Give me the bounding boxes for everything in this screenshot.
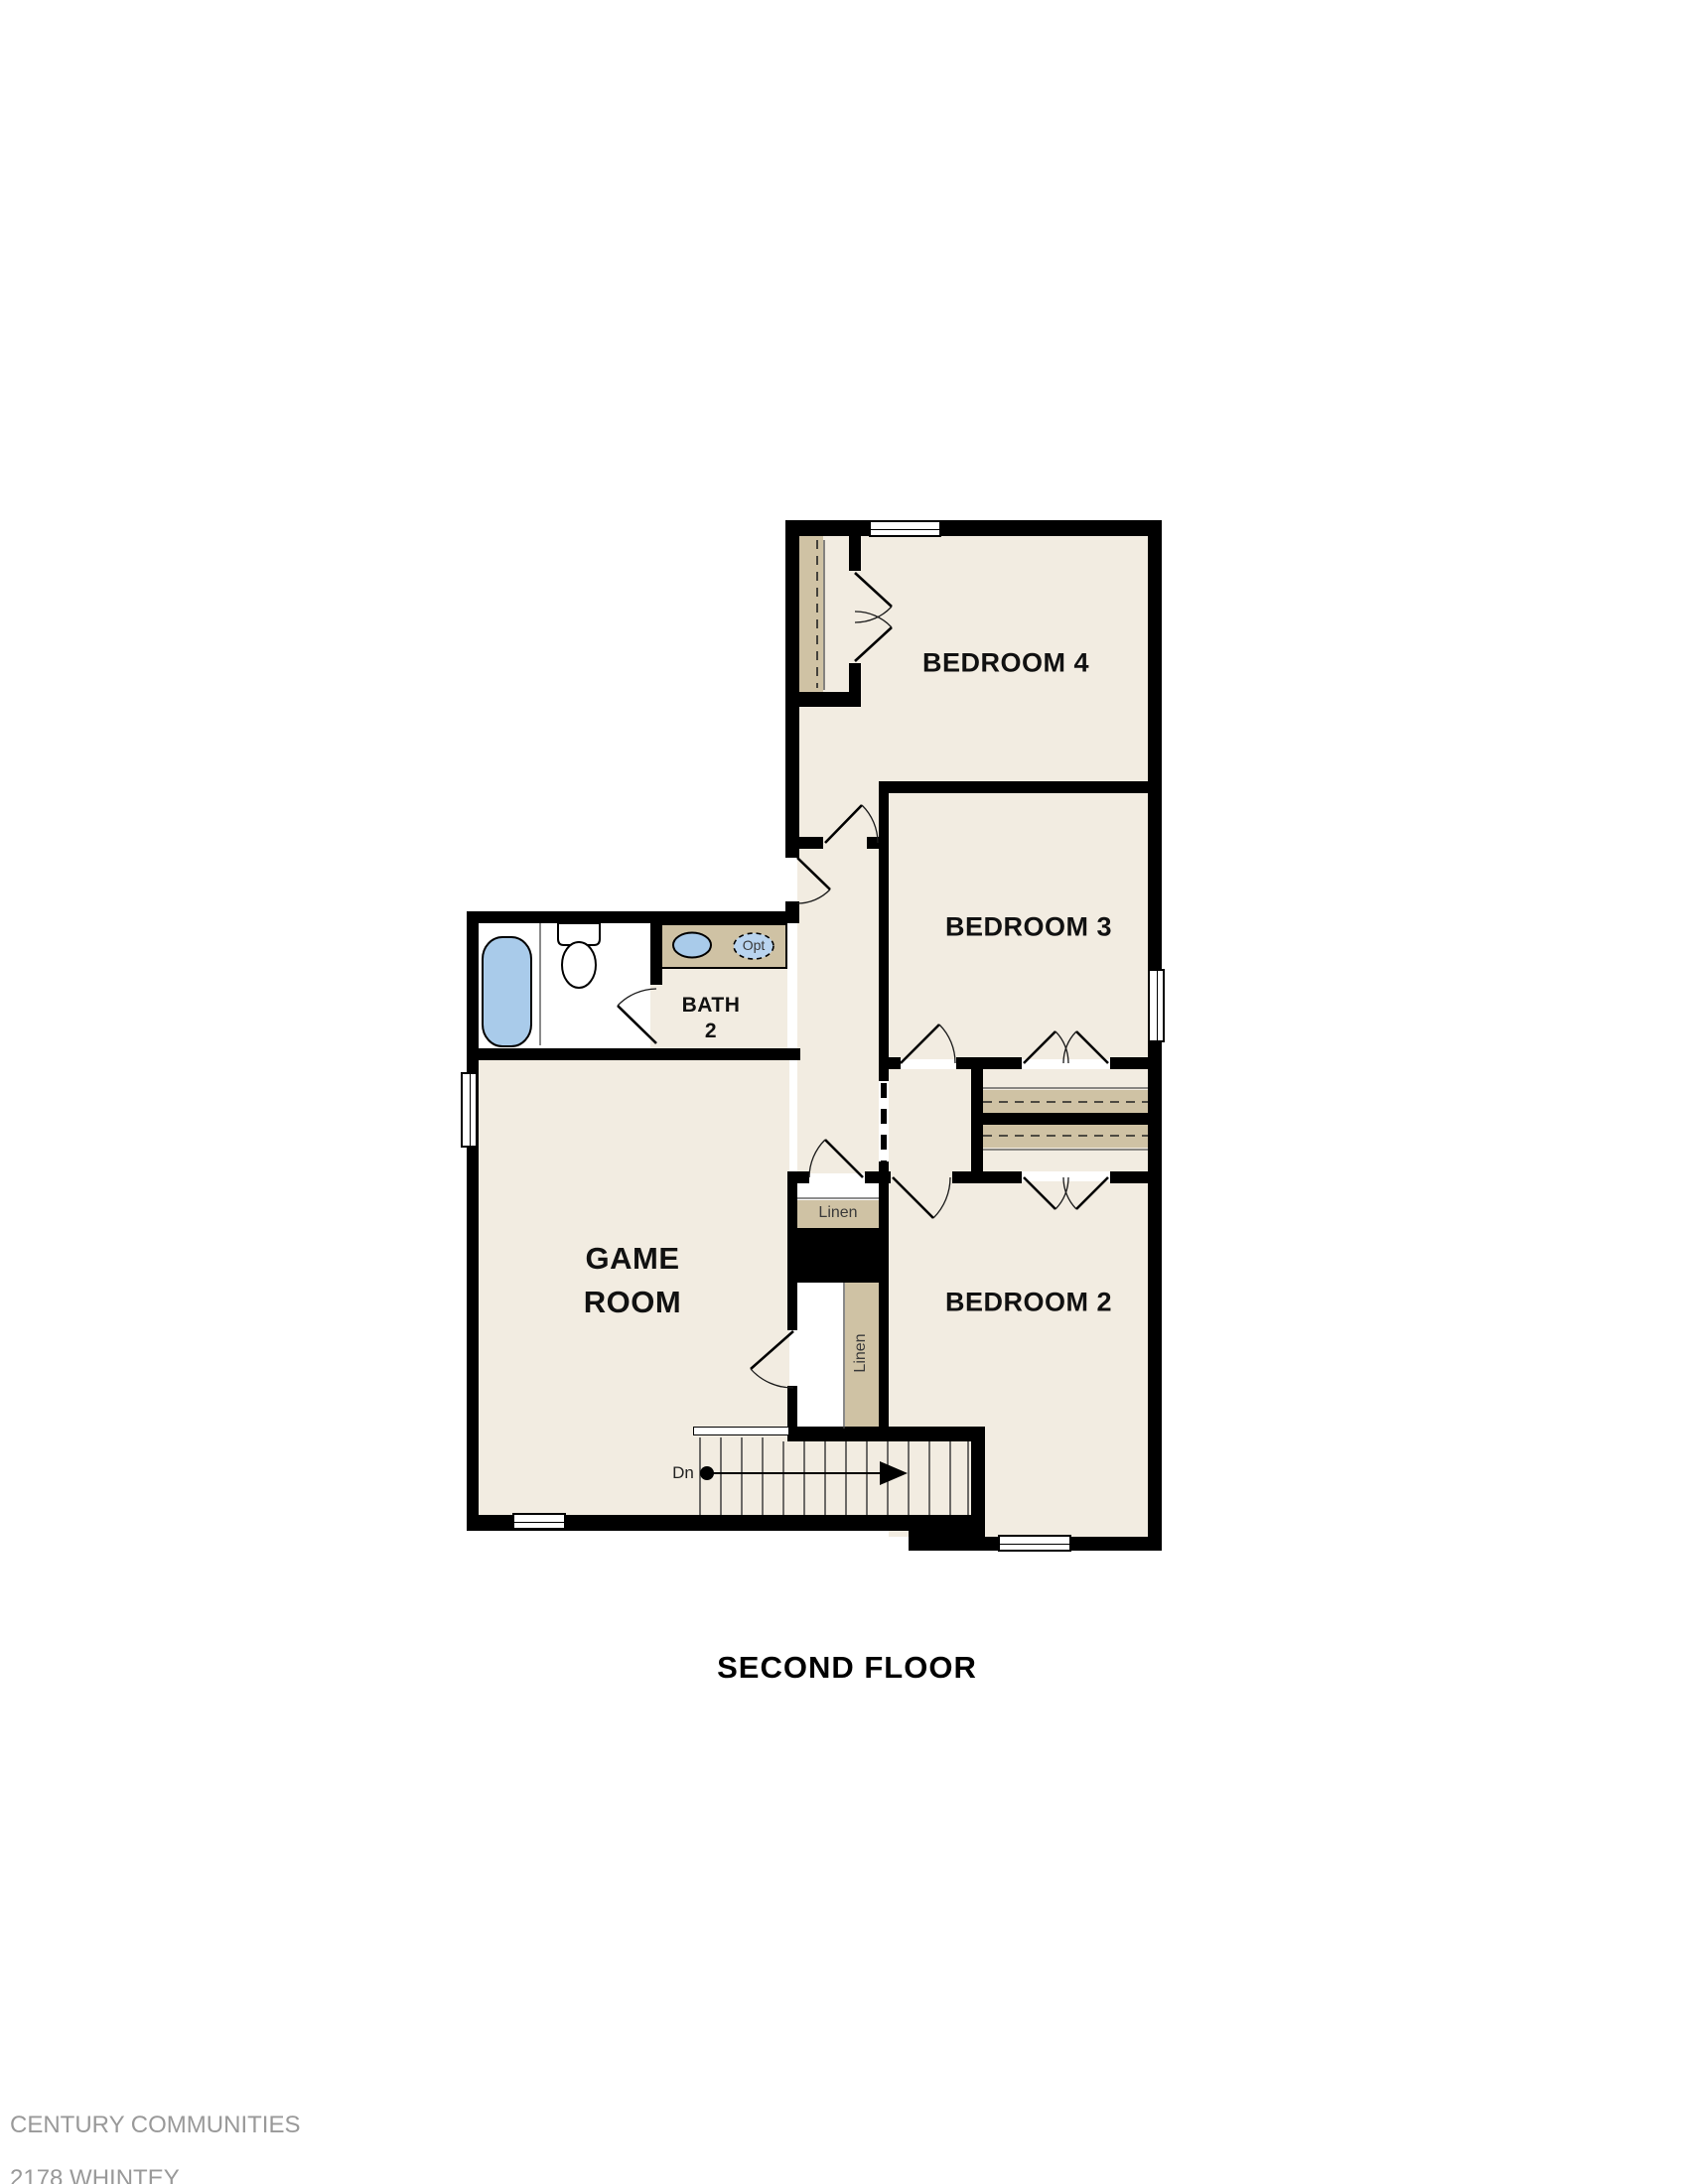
french-doors-bedroom2-closet [1024, 1177, 1108, 1209]
bath2-label: BATH 2 [682, 993, 741, 1044]
stairs-dn-label: Dn [672, 1463, 694, 1483]
door-bedroom2 [893, 1177, 950, 1218]
bath2-label-line2: 2 [682, 1019, 741, 1044]
footer-plan-number: 2178 WHINTEY [10, 2165, 300, 2184]
door-bath2-entry [797, 858, 830, 903]
footer-company: CENTURY COMMUNITIES [10, 2112, 300, 2138]
toilet-icon [558, 923, 600, 988]
plan-annotations [0, 0, 1688, 2184]
bedroom4-label: BEDROOM 4 [922, 648, 1089, 679]
page-title: SECOND FLOOR [717, 1650, 977, 1686]
door-linen-lower [751, 1331, 793, 1388]
gameroom-label-line1: GAME [584, 1237, 681, 1281]
gameroom-label-line2: ROOM [584, 1281, 681, 1324]
door-bath2-inner [618, 989, 656, 1043]
opt-sink-label: Opt [743, 937, 766, 953]
bath2-label-line1: BATH [682, 993, 741, 1019]
bedroom2-label: BEDROOM 2 [945, 1288, 1112, 1318]
linen-lower-label: Linen [852, 1333, 870, 1372]
footer-block: CENTURY COMMUNITIES 2178 WHINTEY REV 01.… [10, 2085, 300, 2184]
french-doors-bedroom3-closet [1024, 1031, 1108, 1063]
floorplan-page: BEDROOM 4 BEDROOM 3 BEDROOM 2 BATH 2 GAM… [0, 0, 1688, 2184]
french-doors-bedroom4-closet [855, 573, 892, 661]
door-linen-upper [809, 1140, 863, 1177]
linen-upper-label: Linen [818, 1204, 857, 1222]
sink-icon [673, 933, 711, 958]
stair-treads [700, 1437, 968, 1515]
door-bedroom4 [825, 805, 878, 843]
gameroom-label: GAME ROOM [584, 1237, 681, 1324]
tub-icon [483, 937, 531, 1046]
door-bedroom3 [901, 1024, 955, 1063]
bedroom3-label: BEDROOM 3 [945, 912, 1112, 943]
